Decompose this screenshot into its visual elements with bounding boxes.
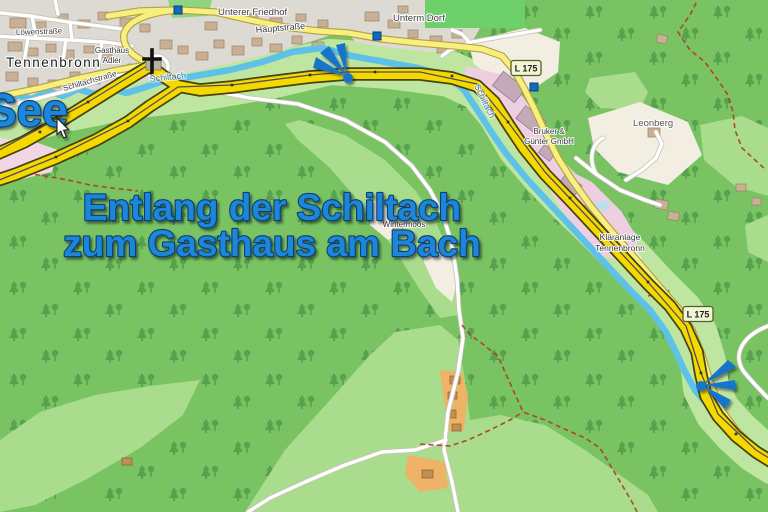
label-unterm-dorf: Unterm Dorf	[393, 13, 445, 24]
road-badge-text: L 175	[515, 64, 538, 74]
road-badge-l175-north: L 175	[511, 61, 541, 76]
label-bruker-1: Bruker &	[533, 127, 565, 136]
road-badge-text: L 175	[687, 310, 710, 320]
waypoint-marker	[174, 6, 182, 14]
label-loewenstrasse: Löwenstraße	[16, 26, 63, 37]
label-klaeranlage-2: Tennenbronn	[595, 243, 645, 253]
caption-line1: Entlang der Schiltach	[83, 187, 461, 228]
map-canvas[interactable]: L 175 L 175 Tennenbronn Löwenstraße Haup…	[0, 0, 768, 512]
label-gasthaus-adler-1: Gasthaus	[95, 46, 129, 55]
label-leonberg: Leonberg	[633, 118, 673, 129]
waypoint-marker	[530, 83, 538, 91]
road-badge-l175-south: L 175	[683, 307, 713, 322]
waypoint-marker	[373, 32, 381, 40]
map-screenshot: L 175 L 175 Tennenbronn Löwenstraße Haup…	[0, 0, 768, 512]
label-klaeranlage-1: Kläranlage	[600, 232, 641, 242]
label-gasthaus-adler-2: Adler	[103, 56, 122, 65]
label-bruker-2: Günter GmbH	[524, 137, 574, 146]
label-town: Tennenbronn	[6, 55, 101, 70]
caption-line2: zum Gasthaus am Bach	[63, 223, 480, 264]
label-unterer-friedhof: Unterer Friedhof	[218, 7, 288, 18]
